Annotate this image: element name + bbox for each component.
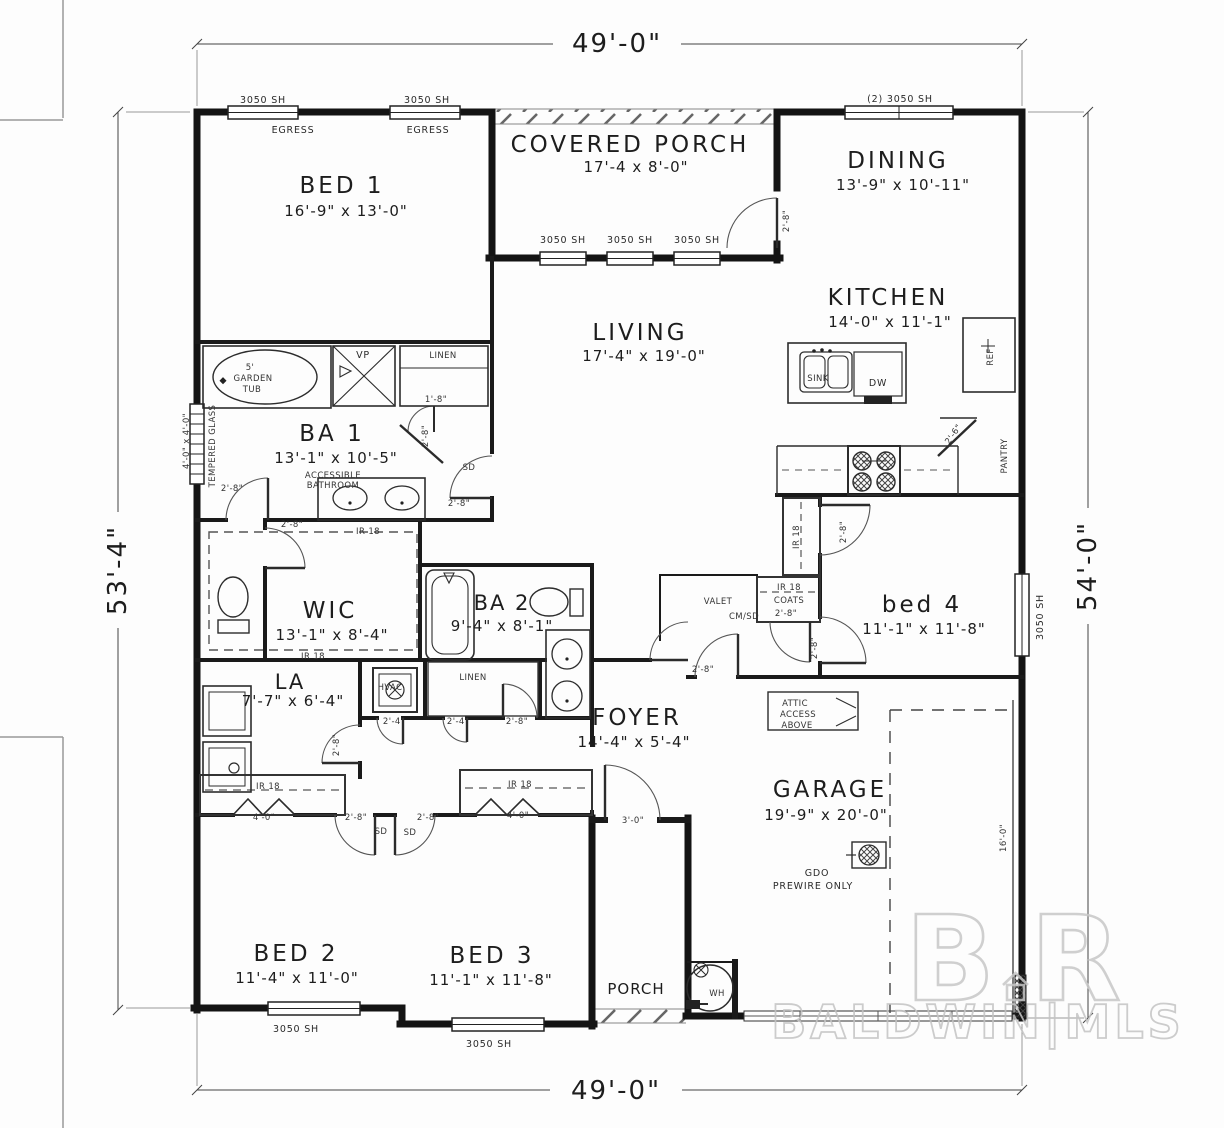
ir18-coats: IR 18 [777, 583, 801, 593]
dining-dims: 13'-9" x 10'-11" [836, 176, 970, 194]
ba1-note-2: BATHROOM [307, 481, 359, 491]
window-3050-bed2: 3050 SH [273, 1024, 319, 1035]
door-bed3: 2'-8" [417, 813, 439, 823]
bed4-label: bed 4 [882, 592, 962, 618]
ir18-bed3-closet: IR 18 [508, 780, 532, 790]
sd-ba1: SD [463, 463, 476, 473]
window-3050-porch3: 3050 SH [674, 235, 720, 246]
sink-label: SINK [807, 374, 828, 384]
floor-plan-sheet: 49'-0" 49'-0" 53'-4" 54'-0" [0, 0, 1224, 1128]
ir18-wic-top: IR 18 [356, 527, 380, 537]
door-coats: 2'-8" [775, 609, 797, 619]
attic-line3: ABOVE [781, 721, 812, 731]
dw-label: DW [869, 378, 887, 389]
exterior-walls [194, 112, 1024, 1026]
ir18-bed2-closet: IR 18 [256, 782, 280, 792]
sheet-border-lines [0, 0, 63, 1128]
tempered-size-label: 4'-0" x 4'-0" [182, 413, 192, 469]
floor-plan-drawing: 49'-0" 49'-0" 53'-4" 54'-0" [0, 0, 1224, 1128]
door-garage-entry: 2'-8" [692, 665, 714, 675]
window-3050-bed4: 3050 SH [1035, 594, 1046, 640]
bed3-label: BED 3 [450, 943, 535, 969]
linen-ba1-label: LINEN [429, 351, 456, 361]
tempered-glass-label: TEMPERED GLASS [208, 405, 218, 489]
la-dims: 7'-7" x 6'-4" [242, 692, 344, 710]
bed2-label: BED 2 [254, 941, 339, 967]
window-3050-bed3: 3050 SH [466, 1039, 512, 1050]
foyer-label: FOYER [592, 705, 682, 731]
bed2-dims: 11'-4" x 11'-0" [235, 969, 359, 987]
attic-line2: ACCESS [780, 710, 816, 720]
window-3050-bed1b: 3050 SH [404, 95, 450, 106]
tub-garden: GARDEN [234, 374, 273, 384]
bed1-label: BED 1 [300, 173, 385, 199]
gdo-label: GDO [805, 868, 830, 879]
mls-watermark: B R BALDWIN|MLS [771, 890, 1185, 1050]
attic-line1: ATTIC [782, 699, 808, 709]
door-ba2: 2'-8" [506, 717, 528, 727]
door-porch-dining: 2'-8" [782, 210, 792, 232]
sd-bed3: SD [404, 828, 417, 838]
kitchen-label: KITCHEN [828, 285, 949, 311]
window-3050-bed1a: 3050 SH [240, 95, 286, 106]
dim-right: 54'-0" [1073, 521, 1103, 611]
linen-hall-label: LINEN [459, 673, 486, 683]
door-bed3-closet: 4'-0" [507, 811, 529, 821]
valet-label: VALET [704, 597, 733, 607]
egress-2: EGRESS [407, 125, 450, 136]
covered-porch-dims: 17'-4 x 8'-0" [583, 158, 688, 176]
dim-bottom: 49'-0" [571, 1076, 661, 1106]
door-wc: 2'-8" [221, 484, 243, 494]
living-label: LIVING [592, 320, 687, 346]
hvac-label: HVAC [378, 683, 403, 693]
window-3050-porch2: 3050 SH [607, 235, 653, 246]
watermark-mls-text: BALDWIN|MLS [771, 995, 1185, 1050]
cmsd-label: CM/SD [729, 612, 759, 622]
door-hvac: 2'-4" [383, 717, 405, 727]
wic-label: WIC [303, 598, 358, 624]
la-label: LA [275, 670, 306, 694]
garage-dims: 19'-9" x 20'-0" [764, 806, 888, 824]
wh-label: WH [709, 989, 725, 999]
tub-tub: TUB [242, 385, 261, 395]
door-la: 2'-8" [332, 734, 342, 756]
ba2-label: BA 2 [474, 591, 531, 615]
dining-label: DINING [847, 148, 949, 174]
pantry-label: PANTRY [1000, 438, 1010, 473]
ba1-dims: 13'-1" x 10'-5" [274, 449, 398, 467]
ba2-dims: 9'-4" x 8'-1" [451, 617, 553, 635]
window-3050-dining: (2) 3050 SH [867, 94, 933, 105]
door-ba1-entry: 2'-8" [448, 499, 470, 509]
egress-1: EGRESS [272, 125, 315, 136]
closet-shelving [200, 498, 820, 815]
vp-label: VP [356, 350, 370, 361]
bed3-dims: 11'-1" x 11'-8" [429, 971, 553, 989]
ba1-label: BA 1 [299, 421, 364, 447]
coats-label: COATS [774, 596, 804, 606]
door-ba1-angled: 2'-8" [421, 425, 431, 447]
door-linen-ba1: 1'-8" [425, 395, 447, 405]
wic-dims: 13'-1" x 8'-4" [275, 626, 388, 644]
bed1-dims: 16'-9" x 13'-0" [284, 202, 408, 220]
bed4-dims: 11'-1" x 11'-8" [862, 620, 986, 638]
door-hall-linen: 2'-4" [447, 717, 469, 727]
door-bed2: 2'-8" [345, 813, 367, 823]
ba1-note-1: ACCESSIBLE [305, 471, 361, 481]
dim-left: 53'-4" [103, 525, 133, 615]
door-front: 3'-0" [622, 816, 644, 826]
living-dims: 17'-4" x 19'-0" [582, 347, 706, 365]
door-bed4-hall: 2'-8" [810, 637, 820, 659]
kitchen-dims: 14'-0" x 11'-1" [828, 313, 952, 331]
garage-label: GARAGE [773, 777, 887, 803]
dim-top: 49'-0" [572, 29, 662, 59]
foyer-dims: 14'-4" x 5'-4" [577, 733, 690, 751]
door-bed2-closet: 4'-0" [253, 813, 275, 823]
window-3050-porch1: 3050 SH [540, 235, 586, 246]
rear-porch-label: PORCH [607, 980, 664, 998]
garage-door-dim: 16'-0" [999, 824, 1009, 852]
door-bed4: 2'-8" [839, 521, 849, 543]
covered-porch-label: COVERED PORCH [511, 132, 750, 158]
ir18-bed4-closet: IR 18 [792, 525, 802, 549]
ref-label: REF [986, 348, 996, 365]
tub-size: 5' [246, 363, 255, 373]
prewire-label: PREWIRE ONLY [773, 881, 853, 892]
ir18-wic-bottom: IR 18 [301, 652, 325, 662]
door-wic: 2'-8" [281, 520, 303, 530]
sd-bed2: SD [375, 827, 388, 837]
